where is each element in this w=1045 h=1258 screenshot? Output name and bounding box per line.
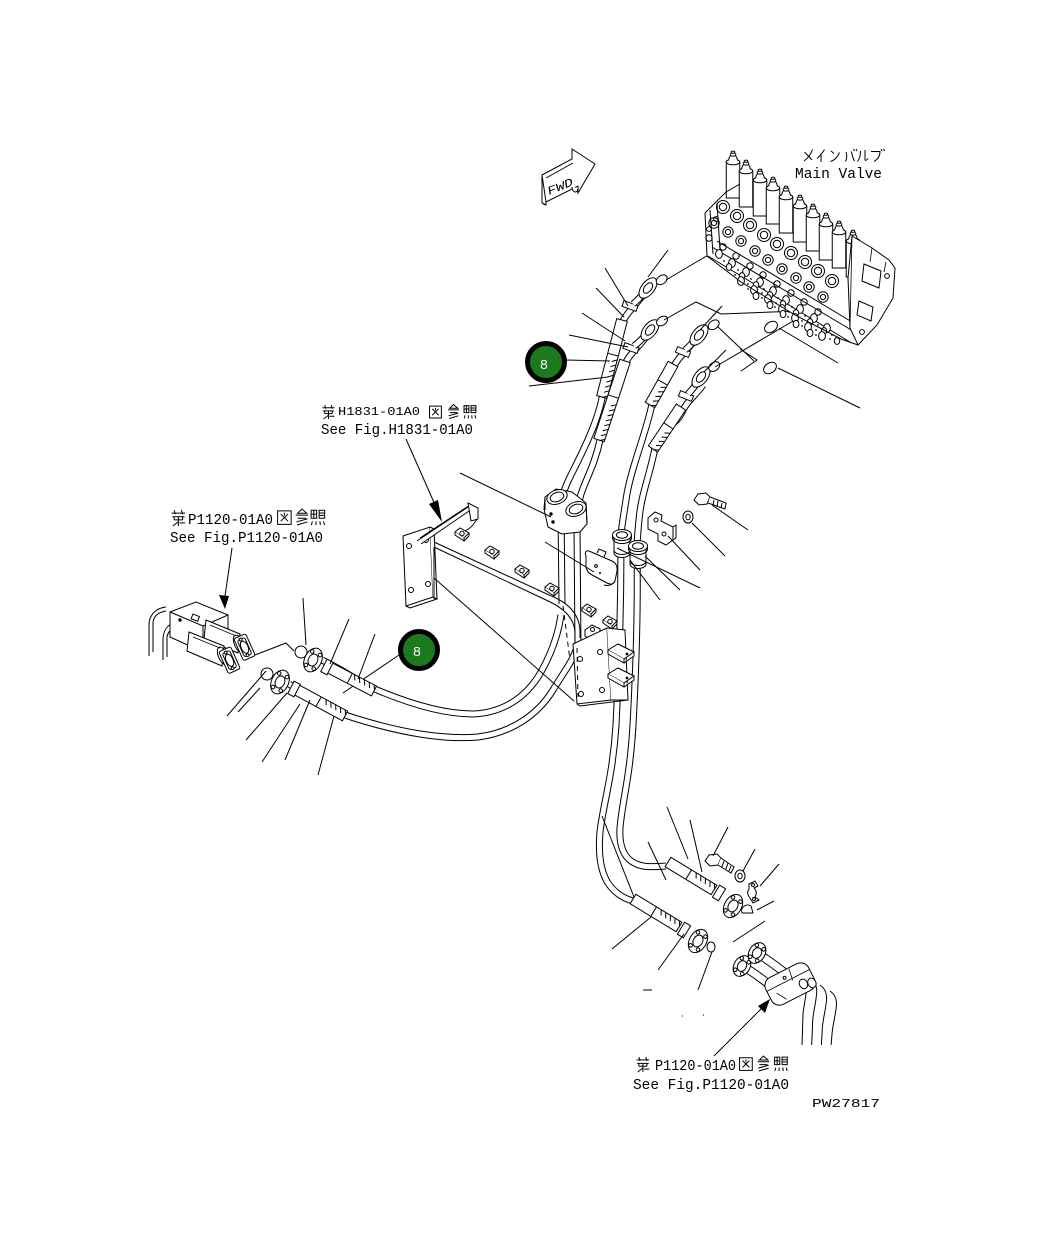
- svg-text:See Fig.P1120-01A0: See Fig.P1120-01A0: [633, 1078, 789, 1094]
- svg-text:8: 8: [540, 358, 548, 374]
- svg-text:See Fig.P1120-01A0: See Fig.P1120-01A0: [170, 531, 323, 547]
- svg-text:P1120-01A0: P1120-01A0: [655, 1058, 736, 1075]
- svg-text:H1831-01A0: H1831-01A0: [338, 405, 420, 419]
- svg-text:Main Valve: Main Valve: [795, 167, 882, 183]
- svg-text:PW27817: PW27817: [812, 1097, 880, 1111]
- svg-text:8: 8: [413, 645, 421, 661]
- svg-text:See Fig.H1831-01A0: See Fig.H1831-01A0: [321, 423, 473, 439]
- svg-text:P1120-01A0: P1120-01A0: [188, 512, 273, 529]
